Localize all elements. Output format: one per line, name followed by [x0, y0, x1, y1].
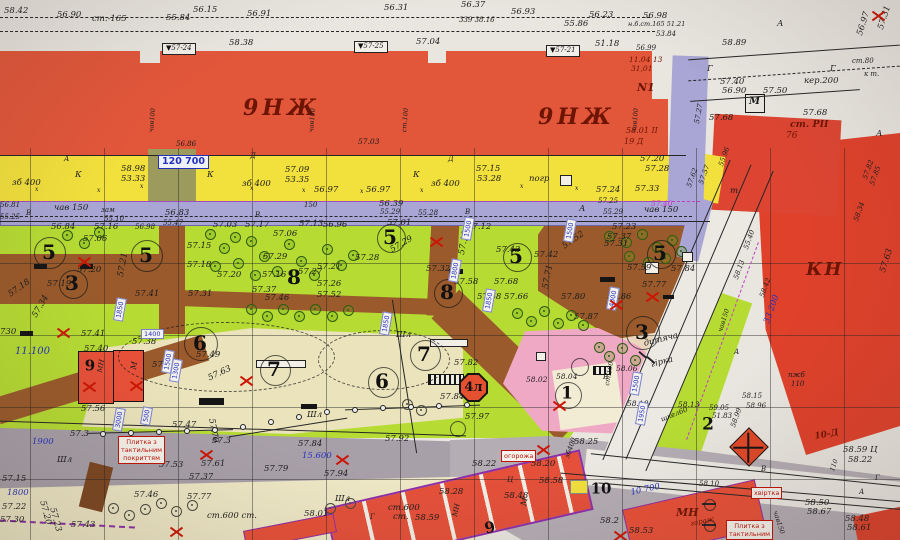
map-label: 57.18: [187, 261, 211, 270]
map-label: 58.58: [539, 477, 563, 486]
map-label: В: [26, 210, 31, 217]
tree-icon: [310, 304, 321, 315]
map-label: 58.53: [629, 527, 653, 536]
map-label: 56.93: [511, 8, 535, 17]
annotation-line: Плитка з: [729, 522, 770, 530]
map-label: 57.37: [189, 473, 213, 482]
benchmark-box: ▼57-24: [162, 43, 196, 55]
map-label: 1900: [32, 438, 54, 447]
map-label: 57.25: [598, 198, 618, 205]
zone-number-8: 8: [440, 282, 454, 302]
annotation-line: покриттям: [121, 454, 162, 462]
map-label: 56.23: [589, 11, 613, 20]
fence-post-dot: [296, 414, 302, 420]
map-label: 58.28: [439, 488, 463, 497]
zone-number-5: 5: [653, 243, 667, 263]
map-label: 56.15: [193, 6, 217, 15]
fence-post-dot: [436, 403, 442, 409]
map-label: 57.68: [803, 109, 827, 118]
map-label: В: [761, 466, 766, 473]
map-label: 9НЖ: [538, 106, 615, 128]
site-plan-map: 58.4256.90ст.-16555.8456.1556.9158.3856.…: [0, 0, 900, 540]
zone-number-3: 3: [65, 273, 79, 293]
removal-x-mark: [646, 291, 659, 304]
zone-notch-2: [428, 51, 446, 63]
map-label: N1: [637, 82, 655, 93]
map-label: 58.59 Ц: [843, 446, 877, 455]
map-label: 57.40: [651, 200, 672, 208]
map-label: 57.03: [358, 138, 379, 146]
map-label: 57.09: [285, 166, 309, 175]
map-label: 57.87: [574, 313, 598, 322]
tree-icon: [594, 342, 605, 353]
zone-number-6: 6: [375, 371, 389, 391]
tree-icon: [327, 311, 338, 322]
grid-line-horizontal: [0, 479, 900, 480]
zone-octagon-4: 4л: [461, 375, 486, 400]
map-label: ст.100: [401, 108, 410, 133]
map-label: 57.33: [635, 185, 659, 194]
map-label: М: [520, 497, 530, 507]
map-label: 56.90: [722, 87, 746, 96]
map-label: 57.23: [612, 223, 636, 232]
zone-number-2: 2: [702, 417, 714, 434]
tree-icon: [278, 304, 289, 315]
map-label: 57.82: [454, 359, 478, 368]
tree-icon: [171, 506, 182, 517]
tree-icon: [246, 304, 257, 315]
map-label: 57.43: [71, 521, 95, 530]
map-label: 55.28: [418, 210, 438, 217]
map-label: 57.84: [298, 440, 322, 449]
map-label: 57.20: [640, 155, 664, 164]
map-label: 57.38: [132, 338, 156, 347]
map-label: 57.13: [299, 220, 323, 229]
map-label: 57.52: [317, 291, 341, 300]
tree-icon: [284, 239, 295, 250]
map-label: 57.17: [245, 221, 269, 230]
map-label: х: [360, 189, 363, 195]
fence-post-dot: [408, 404, 414, 410]
map-label: 56.37: [461, 1, 485, 10]
map-label: 58.38: [229, 39, 253, 48]
structure-symbol: [536, 352, 546, 361]
map-label: Шл: [396, 331, 411, 340]
map-label: 56.97: [856, 11, 872, 37]
zone-number-8: 8: [287, 267, 301, 287]
removal-x-mark: [200, 449, 213, 462]
map-label: 58.67: [807, 508, 831, 517]
map-label: Шл: [307, 411, 322, 420]
map-label: 57.04: [416, 38, 440, 47]
tree-icon: [230, 232, 241, 243]
map-label: Г: [707, 65, 713, 74]
map-label: Д: [448, 156, 454, 163]
map-label: 11.04 13: [629, 56, 662, 64]
map-label: 57.06: [83, 235, 107, 244]
map-label: 56.86: [176, 141, 196, 148]
zone-number-9: 9: [85, 359, 95, 374]
map-label: 57.47: [172, 421, 196, 430]
map-label: чав 150: [54, 204, 88, 213]
map-label: 57.06: [273, 230, 297, 239]
map-label: 58.15: [742, 393, 762, 400]
map-label: 56.97: [314, 186, 338, 195]
map-label: 57.15: [2, 475, 26, 484]
tree-icon: [539, 306, 550, 317]
tree-icon: [624, 251, 635, 262]
map-label: 56.90: [57, 11, 81, 20]
map-label: 57.77: [187, 493, 211, 502]
map-label: МН: [676, 507, 699, 518]
map-line: [0, 155, 686, 156]
map-label: т.: [730, 187, 741, 196]
bench-symbol: [301, 404, 317, 409]
map-line: [0, 201, 700, 202]
map-label: 55.29: [380, 209, 400, 216]
tree-icon: [617, 343, 628, 354]
map-label: 57.24: [596, 186, 620, 195]
map-label: 57.42: [534, 251, 558, 260]
map-label: 51.83: [712, 413, 732, 420]
annotation-line: Плитка з: [121, 438, 162, 446]
map-label: 57.40: [84, 345, 108, 354]
map-label: 730: [0, 328, 16, 337]
zone-number-3: 3: [635, 322, 649, 342]
map-label: 57.41: [135, 290, 159, 299]
map-label: 15.600: [302, 452, 332, 461]
map-label: 57.16: [262, 271, 286, 280]
map-label: 57.28: [645, 165, 669, 174]
map-label: К: [207, 171, 214, 180]
map-label: Д: [250, 153, 256, 160]
zone-path-vertical: [159, 220, 185, 334]
fence-post-dot: [352, 407, 358, 413]
map-label: 57.03: [213, 221, 237, 230]
map-label: 56.99: [636, 45, 656, 52]
map-label: 57.22: [2, 503, 26, 512]
map-label: 57.97: [465, 413, 489, 422]
map-label: пжб: [788, 372, 805, 379]
map-label: 58.22: [848, 456, 872, 465]
map-label: 56.98: [135, 224, 155, 231]
map-label: 58.89: [722, 39, 746, 48]
map-label: 57.66: [504, 293, 528, 302]
map-label: Шл: [57, 456, 72, 465]
removal-x-mark: [130, 380, 143, 393]
benchmark-box: ▼57-25: [354, 41, 388, 53]
map-label: 57.27: [298, 268, 322, 277]
map-label: 19 Д: [624, 138, 643, 146]
annotation-box: Плитка зтактильнимпокриттям: [118, 436, 165, 464]
tree-icon: [416, 405, 427, 416]
map-label: 110: [791, 381, 804, 388]
map-label: 57.32: [426, 265, 450, 274]
map-label: М: [130, 361, 139, 370]
map-label: Шл: [335, 495, 350, 504]
fence-post-dot: [100, 431, 106, 437]
grid-line-vertical: [696, 148, 697, 540]
bench-symbol: [20, 331, 33, 336]
map-label: Г: [875, 475, 880, 482]
map-label: КН: [806, 261, 843, 279]
map-label: х: [420, 188, 423, 194]
bench-symbol: [663, 295, 674, 299]
annotation-line: тактильним: [729, 530, 770, 538]
map-label: 57.68: [709, 114, 733, 123]
map-label: А: [876, 130, 882, 139]
map-label: ст. РII: [790, 120, 828, 130]
map-label: 57.79: [264, 465, 288, 474]
map-label: 76: [786, 132, 797, 141]
map-label: х: [140, 184, 143, 190]
map-label: 339 38.16: [459, 17, 495, 24]
map-label: 57.84: [671, 265, 695, 274]
removal-x-mark: [240, 375, 253, 388]
map-label: 56.96: [323, 221, 347, 230]
bench-symbol: [600, 277, 615, 282]
map-label: 57.77: [642, 281, 666, 290]
tree-icon: [108, 503, 119, 514]
removal-x-mark: [872, 10, 885, 23]
map-label: 58.10: [699, 481, 719, 488]
map-label: 56.83: [165, 209, 189, 218]
annotation-box: хвіртка: [751, 487, 782, 499]
map-label: ст.-165: [92, 15, 127, 24]
map-label: 58.04: [556, 373, 577, 381]
map-label: х: [302, 188, 305, 194]
map-label: 57.15: [476, 165, 500, 174]
grid-line-vertical: [30, 148, 31, 540]
map-label: К: [75, 171, 82, 180]
map-label: 56.97: [366, 186, 390, 195]
fence-post-dot: [156, 429, 162, 435]
map-label: зам: [101, 207, 115, 214]
map-label: Ц: [507, 477, 513, 484]
removal-x-mark: [430, 236, 443, 249]
map-label: 57.80: [561, 293, 585, 302]
annotation-line: хвіртка: [754, 489, 779, 497]
map-label: к т.: [864, 71, 879, 78]
annotation-box: Плитка зтактильним: [726, 520, 773, 540]
map-label: 57.46: [134, 491, 158, 500]
removal-x-mark: [553, 400, 566, 413]
map-label: погр: [529, 175, 549, 184]
map-label: 53.84: [656, 31, 676, 38]
removal-x-mark: [614, 530, 627, 540]
map-label: В: [465, 209, 470, 216]
map-label: 56.81: [0, 202, 20, 209]
map-label: ст.: [393, 513, 409, 522]
map-label: 1800: [7, 489, 29, 498]
map-label: 58.2: [600, 517, 619, 526]
tree-icon: [140, 504, 151, 515]
tree-icon: [343, 305, 354, 316]
map-label: 57.16: [94, 223, 118, 232]
map-label: А: [734, 349, 739, 356]
fence-post-dot: [380, 405, 386, 411]
survey-circle: [704, 499, 716, 511]
tree-icon: [512, 308, 523, 319]
map-label: 58.22: [472, 460, 496, 469]
tree-icon: [637, 229, 648, 240]
coordinate-label: 120 700: [158, 155, 209, 169]
map-label: чав100: [308, 108, 317, 133]
map-label: 57.68: [494, 278, 518, 287]
zone-notch-1: [140, 51, 160, 63]
removal-x-mark: [78, 256, 91, 269]
zone-yellow-square-small: [570, 480, 588, 494]
map-label: 58.02: [526, 376, 547, 384]
structure-symbol: [560, 175, 572, 186]
fence-post-dot: [240, 424, 246, 430]
map-label: 58.01: [304, 510, 328, 519]
map-label: 58.99: [730, 407, 743, 428]
map-label: 58.96: [746, 403, 766, 410]
tree-icon: [124, 510, 135, 521]
removal-x-mark: [57, 327, 70, 340]
fence-post-dot: [268, 419, 274, 425]
map-label: В: [255, 212, 260, 219]
map-label: 150: [304, 202, 317, 209]
zone-number-10: 10: [591, 482, 612, 497]
zone-number-7: 7: [267, 359, 281, 379]
map-label: 56.31: [384, 4, 408, 13]
removal-x-mark: [537, 444, 550, 457]
map-label: 53.35: [285, 176, 309, 185]
annotation-line: огорожа: [504, 452, 533, 460]
fence-post-dot: [464, 402, 470, 408]
map-label: 59.05: [709, 405, 729, 412]
map-label: х: [35, 187, 38, 193]
map-label: 57.31: [604, 240, 628, 249]
map-label: 53.28: [477, 175, 501, 184]
benchmark-box: ▼57-21: [546, 45, 580, 57]
map-label: 58.59: [415, 514, 439, 523]
map-label: 57.94: [324, 470, 348, 479]
annotation-box: огорожа: [501, 450, 536, 462]
map-label: ст.80: [852, 58, 874, 65]
tree-icon: [250, 270, 261, 281]
map-label: М: [749, 97, 760, 107]
tree-icon: [262, 311, 273, 322]
map-label: 57.46: [265, 294, 289, 303]
map-label: 57.26: [317, 280, 341, 289]
map-label: 31,01: [631, 65, 652, 73]
map-label: 57.3: [70, 430, 89, 439]
map-label: 57.31: [188, 290, 212, 299]
map-label: 57.50: [763, 87, 787, 96]
tree-icon: [526, 316, 537, 327]
map-label: 57.28: [355, 254, 379, 263]
map-label: х: [97, 188, 100, 194]
removal-x-mark: [83, 381, 96, 394]
map-label: чав100: [631, 108, 640, 133]
map-label: 58.98: [121, 165, 145, 174]
map-label: н.б.ст.165 51.21: [628, 21, 685, 28]
tree-icon: [246, 236, 257, 247]
map-label: 57.3: [212, 437, 231, 446]
tree-icon: [233, 258, 244, 269]
tree-icon: [205, 229, 216, 240]
bench-symbol: [199, 398, 224, 405]
map-label: х: [520, 184, 523, 190]
map-label: 55.47: [163, 220, 183, 227]
map-label: 11.100: [15, 347, 50, 357]
zone-number-5: 5: [139, 245, 153, 265]
map-label: ст.600 ст.: [207, 512, 257, 521]
map-label: х: [575, 186, 578, 192]
zone-number-7: 7: [417, 344, 431, 364]
tree-icon: [294, 311, 305, 322]
map-label: А: [579, 205, 585, 214]
map-label: 57.15: [187, 242, 211, 251]
zone-number-5: 5: [383, 227, 397, 247]
map-label: 51.18: [595, 40, 619, 49]
map-label: 58.61: [847, 524, 871, 533]
map-label: А: [64, 156, 69, 163]
map-label: 56.84: [51, 223, 75, 232]
map-label: 58.42: [4, 7, 28, 16]
zone-number-5: 5: [509, 246, 523, 266]
tree-icon: [219, 243, 230, 254]
map-label: А: [777, 20, 783, 29]
map-label: 57.41: [81, 330, 105, 339]
map-label: А: [859, 489, 864, 496]
fence-post-dot: [324, 409, 330, 415]
removal-x-mark: [336, 454, 349, 467]
map-line: [0, 31, 655, 32]
map-label: Г: [370, 514, 375, 521]
grid-line-vertical: [770, 148, 771, 540]
tree-icon: [553, 318, 564, 329]
survey-circle: [450, 421, 466, 437]
removal-x-mark: [610, 299, 623, 312]
map-label: 55.29: [603, 209, 623, 216]
annotation-line: тактильним: [121, 446, 162, 454]
zone-kiosk-9a: [78, 351, 114, 404]
grid-line-vertical: [474, 148, 475, 540]
map-label: чав100: [148, 108, 157, 133]
map-label: 57.30: [0, 516, 24, 525]
map-label: зб 400: [242, 180, 271, 189]
map-label: К: [413, 171, 420, 180]
map-label: зб 400: [431, 180, 460, 189]
map-label: 55.86: [564, 20, 588, 29]
zone-number-5: 5: [42, 242, 56, 262]
map-label: х: [250, 186, 253, 192]
map-label: 57.92: [385, 435, 409, 444]
zone-number-6: 6: [193, 333, 207, 353]
map-label: 57.29: [263, 253, 287, 262]
map-label: 55.25: [0, 214, 20, 221]
structure-symbol: [682, 252, 693, 262]
map-label: 57.56: [81, 405, 105, 414]
map-label: кер.200: [804, 77, 838, 86]
grid-line-horizontal: [0, 335, 900, 336]
map-label: 57.59: [627, 264, 651, 273]
map-label: 55.84: [166, 14, 190, 23]
removal-x-mark: [170, 526, 183, 539]
map-label: Г: [830, 65, 836, 74]
map-label: 57.20: [217, 271, 241, 280]
utility-length-label: 1400: [141, 329, 164, 339]
map-label: 56.91: [247, 10, 271, 19]
tree-icon: [322, 244, 333, 255]
